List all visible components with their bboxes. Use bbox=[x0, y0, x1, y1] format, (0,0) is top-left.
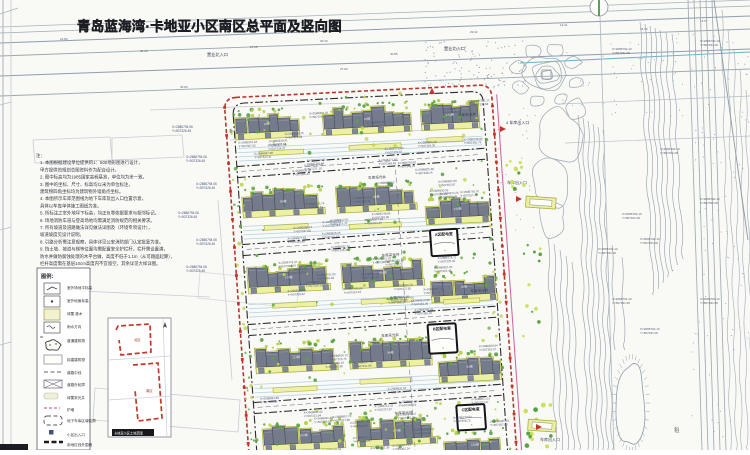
svg-text:17#楼: 17#楼 bbox=[393, 427, 401, 432]
svg-text:7. 所有坡道及道路做法详见做法详图及（环境专项设计），: 7. 所有坡道及道路做法详见做法详图及（环境专项设计）， bbox=[40, 224, 152, 231]
svg-text:Y=507326.45: Y=507326.45 bbox=[186, 159, 205, 163]
svg-text:小区出入口: 小区出入口 bbox=[67, 432, 85, 437]
svg-text:8#楼: 8#楼 bbox=[280, 198, 287, 203]
svg-text:3. 图中的坐标、尺寸、标高均以米为单位标注，: 3. 图中的坐标、尺寸、标高均以米为单位标注， bbox=[40, 181, 133, 188]
svg-text:27.58: 27.58 bbox=[250, 45, 258, 49]
svg-text:27.90: 27.90 bbox=[340, 67, 348, 71]
svg-text:绿篱采光井: 绿篱采光井 bbox=[67, 395, 85, 400]
svg-text:13#楼: 13#楼 bbox=[471, 442, 479, 447]
svg-text:3#楼: 3#楼 bbox=[387, 349, 394, 354]
svg-text:29.32: 29.32 bbox=[470, 30, 478, 34]
svg-text:室外地面标高: 室外地面标高 bbox=[67, 298, 89, 303]
svg-text:8. 引路分析需注意观察，具体详见公安消防部门认定批复为准。: 8. 引路分析需注意观察，具体详见公安消防部门认定批复为准。 bbox=[40, 238, 163, 245]
svg-text:#F: #F bbox=[40, 335, 44, 339]
svg-text:Y=507326.45: Y=507326.45 bbox=[178, 215, 197, 219]
svg-text:Y=507332.24: Y=507332.24 bbox=[392, 446, 410, 450]
svg-text:Y=507331.06: Y=507331.06 bbox=[700, 201, 718, 205]
svg-text:车库采光井: 车库采光井 bbox=[470, 287, 489, 293]
svg-text:Y=507331.06: Y=507331.06 bbox=[700, 301, 718, 305]
svg-text:4#楼: 4#楼 bbox=[373, 194, 380, 199]
svg-text:建筑物四角坐标均为建筑物外墙角点坐标。: 建筑物四角坐标均为建筑物外墙角点坐标。 bbox=[40, 188, 123, 195]
svg-text:30.30: 30.30 bbox=[320, 39, 328, 43]
svg-text:4 车库出入口: 4 车库出入口 bbox=[506, 119, 529, 125]
svg-text:南区: 南区 bbox=[146, 388, 153, 393]
svg-text:6. 场地消防车道与登高场地均需满足消防规范的相关要求。: 6. 场地消防车道与登高场地均需满足消防规范的相关要求。 bbox=[40, 217, 155, 224]
svg-text:Y=507331.06: Y=507331.06 bbox=[612, 301, 630, 305]
svg-text:北区: 北区 bbox=[134, 337, 141, 342]
svg-text:车库采光井: 车库采光井 bbox=[381, 332, 400, 338]
svg-text:Y=507331.06: Y=507331.06 bbox=[660, 151, 678, 155]
svg-text:5. 所标注之室外地坪下标高，均正负零依据要求与相邻标记。: 5. 所标注之室外地坪下标高，均正负零依据要求与相邻标记。 bbox=[40, 210, 159, 217]
svg-text:栏杆高度需在基层10cm高度内不宜留空，其余详见大样详图。: 栏杆高度需在基层10cm高度内不宜留空，其余详见大样详图。 bbox=[40, 260, 161, 267]
svg-text:雨水方向: 雨水方向 bbox=[67, 324, 82, 329]
svg-text:2. 图中标高均为1985国家高程基准，单位均为米一致。: 2. 图中标高均为1985国家高程基准，单位均为米一致。 bbox=[40, 174, 147, 181]
svg-text:Y=507326.45: Y=507326.45 bbox=[172, 129, 191, 133]
svg-text:防水并做防腐蚀处理的木平台做，高度不低于1.1m（从可踏面起: 防水并做防腐蚀处理的木平台做，高度不低于1.1m（从可踏面起算）， bbox=[40, 253, 175, 260]
svg-text:地下车库区域轮廓: 地下车库区域轮廓 bbox=[67, 418, 96, 423]
svg-text:9. 挡土墙、坡道与梯等位置均需配置安全护栏杆，栏杆需设置满: 9. 挡土墙、坡道与梯等位置均需配置安全护栏杆，栏杆需设置满， bbox=[40, 246, 168, 253]
svg-text:绿篱 灌木: 绿篱 灌木 bbox=[67, 311, 83, 316]
svg-text:Y=507331.06: Y=507331.06 bbox=[598, 251, 616, 255]
svg-text:Y=507331.06: Y=507331.06 bbox=[640, 331, 658, 335]
svg-text:4#楼: 4#楼 bbox=[461, 284, 468, 289]
svg-text:Y=507326.45: Y=507326.45 bbox=[196, 186, 215, 190]
svg-text:拟建建筑物: 拟建建筑物 bbox=[67, 357, 85, 362]
svg-text:1. 本图根据建设单位提供的1：500地形图进行设计，: 1. 本图根据建设单位提供的1：500地形图进行设计， bbox=[40, 159, 142, 166]
svg-text:Y=507326.45: Y=507326.45 bbox=[196, 242, 215, 246]
svg-text:置业北入口: 置业北入口 bbox=[207, 51, 228, 58]
svg-text:道路中线: 道路中线 bbox=[67, 370, 82, 375]
svg-text:普通建筑物: 普通建筑物 bbox=[67, 338, 85, 343]
svg-text:35.63: 35.63 bbox=[140, 49, 148, 53]
svg-text:10#楼: 10#楼 bbox=[300, 432, 308, 437]
svg-text:用地红线外围墙: 用地红线外围墙 bbox=[67, 442, 93, 447]
svg-text:13.31: 13.31 bbox=[560, 23, 568, 27]
svg-text:Y=507331.06: Y=507331.06 bbox=[700, 43, 718, 47]
svg-text:C区配电室: C区配电室 bbox=[461, 406, 479, 412]
svg-text:Y=507331.06: Y=507331.06 bbox=[622, 216, 640, 220]
svg-text:Y=507331.06: Y=507331.06 bbox=[640, 241, 658, 245]
svg-text:具体以车库单体施工图纸为准。: 具体以车库单体施工图纸为准。 bbox=[40, 202, 101, 209]
svg-text:室外场地平标高: 室外场地平标高 bbox=[67, 285, 93, 290]
svg-text:11#楼: 11#楼 bbox=[292, 354, 300, 359]
svg-text:14#楼: 14#楼 bbox=[453, 206, 461, 211]
svg-text:车库采光井: 车库采光井 bbox=[368, 174, 387, 180]
svg-text:5#楼: 5#楼 bbox=[466, 364, 473, 369]
svg-text:Y=507331.06: Y=507331.06 bbox=[612, 51, 630, 55]
svg-text:青岛蓝海湾·卡地亚小区南区总平面及竖向图: 青岛蓝海湾·卡地亚小区南区总平面及竖向图 bbox=[77, 18, 342, 34]
svg-text:道路外轮廓: 道路外轮廓 bbox=[67, 382, 85, 387]
svg-text:车库采光井: 车库采光井 bbox=[458, 111, 477, 117]
svg-text:注：: 注： bbox=[36, 152, 45, 159]
svg-text:4. 本图所示车库范围线为地下车库及出入口位置示意，: 4. 本图所示车库范围线为地下车库及出入口位置示意， bbox=[40, 195, 146, 202]
svg-text:卡地亚小区土地范围: 卡地亚小区土地范围 bbox=[114, 430, 143, 435]
svg-text:B区配电室: B区配电室 bbox=[433, 326, 451, 332]
svg-text:护墙: 护墙 bbox=[67, 407, 75, 412]
svg-text:坡道坡度见设计说明。: 坡道坡度见设计说明。 bbox=[40, 231, 84, 238]
svg-text:40.80: 40.80 bbox=[180, 85, 188, 89]
svg-text:40.85: 40.85 bbox=[390, 52, 398, 56]
svg-text:租: 租 bbox=[674, 426, 680, 434]
svg-text:图例：: 图例： bbox=[41, 272, 57, 280]
svg-text:Y=507326.45: Y=507326.45 bbox=[186, 269, 205, 273]
svg-text:17#楼: 17#楼 bbox=[285, 274, 293, 279]
svg-text:22.80: 22.80 bbox=[60, 37, 68, 41]
svg-text:置业北入口: 置业北入口 bbox=[444, 45, 465, 52]
svg-text:A区配电室: A区配电室 bbox=[435, 231, 453, 237]
svg-text:甲方提供的规划总图资料作为配合设计。: 甲方提供的规划总图资料作为配合设计。 bbox=[40, 166, 119, 173]
